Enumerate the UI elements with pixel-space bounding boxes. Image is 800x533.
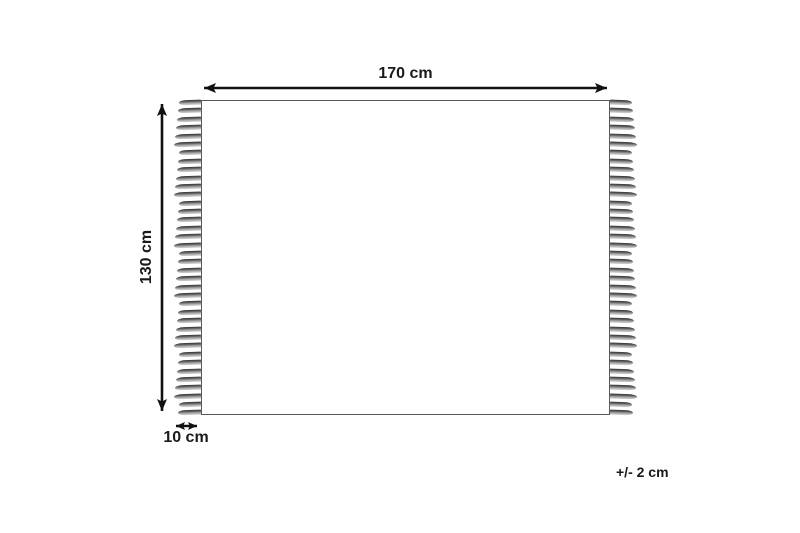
fringe-tassel bbox=[177, 167, 201, 172]
fringe-tassel bbox=[179, 402, 201, 407]
fringe-tassel bbox=[177, 267, 201, 272]
fringe-tassel bbox=[174, 343, 201, 348]
fringe-tassel bbox=[176, 175, 201, 180]
fringe-tassel bbox=[174, 192, 201, 197]
fringe-tassel bbox=[610, 167, 634, 172]
fringe-tassel bbox=[610, 217, 634, 222]
fringe-tassel bbox=[610, 267, 634, 272]
fringe-tassel bbox=[175, 334, 201, 339]
rug-fringe-right bbox=[610, 100, 639, 415]
fringe-tassel bbox=[176, 276, 201, 281]
fringe-tassel bbox=[610, 141, 637, 146]
fringe-tassel bbox=[610, 158, 633, 163]
fringe-tassel bbox=[610, 334, 636, 339]
rug-fringe-left bbox=[172, 100, 201, 415]
fringe-tassel bbox=[610, 192, 637, 197]
fringe-tassel bbox=[179, 200, 201, 205]
fringe-tassel bbox=[178, 360, 201, 365]
fringe-tassel bbox=[176, 225, 201, 230]
rug-dimension-diagram: 170 cm 130 cm 10 cm +/- 2 cm bbox=[0, 0, 800, 533]
fringe-tassel bbox=[179, 100, 201, 105]
fringe-tassel bbox=[610, 100, 632, 105]
fringe-tassel bbox=[610, 360, 633, 365]
fringe-tassel bbox=[178, 158, 201, 163]
fringe-tassel bbox=[610, 133, 636, 138]
fringe-tassel bbox=[178, 410, 201, 415]
fringe-tassel bbox=[174, 293, 201, 298]
fringe-tassel bbox=[179, 251, 201, 256]
fringe-tassel bbox=[610, 225, 635, 230]
rug-body-outline bbox=[201, 100, 610, 415]
fringe-tassel bbox=[610, 351, 632, 356]
fringe-tassel bbox=[175, 133, 201, 138]
width-dimension-label: 170 cm bbox=[201, 66, 610, 82]
fringe-tassel bbox=[610, 326, 635, 331]
fringe-dimension-label: 10 cm bbox=[156, 430, 216, 446]
fringe-tassel bbox=[610, 209, 633, 214]
fringe-tassel bbox=[610, 183, 636, 188]
fringe-tassel bbox=[178, 259, 201, 264]
fringe-tassel bbox=[610, 234, 636, 239]
fringe-tassel bbox=[610, 116, 634, 121]
fringe-tassel bbox=[174, 141, 201, 146]
fringe-tassel bbox=[178, 209, 201, 214]
fringe-tassel bbox=[610, 276, 635, 281]
fringe-tassel bbox=[175, 234, 201, 239]
fringe-tassel bbox=[610, 309, 633, 314]
fringe-tassel bbox=[610, 200, 632, 205]
fringe-tassel bbox=[610, 301, 632, 306]
fringe-tassel bbox=[179, 351, 201, 356]
fringe-tassel bbox=[610, 284, 636, 289]
fringe-tassel bbox=[610, 402, 632, 407]
fringe-tassel bbox=[175, 385, 201, 390]
fringe-tassel bbox=[179, 301, 201, 306]
tolerance-label: +/- 2 cm bbox=[616, 465, 669, 479]
fringe-tassel bbox=[177, 217, 201, 222]
fringe-tassel bbox=[176, 326, 201, 331]
fringe-tassel bbox=[610, 410, 633, 415]
fringe-tassel bbox=[610, 150, 632, 155]
fringe-tassel bbox=[610, 175, 635, 180]
fringe-tassel bbox=[177, 368, 201, 373]
fringe-tassel bbox=[178, 309, 201, 314]
height-dimension-label: 130 cm bbox=[139, 211, 155, 303]
fringe-tassel bbox=[177, 116, 201, 121]
fringe-tassel bbox=[178, 108, 201, 113]
fringe-tassel bbox=[177, 318, 201, 323]
fringe-tassel bbox=[610, 318, 634, 323]
fringe-tassel bbox=[174, 242, 201, 247]
fringe-tassel bbox=[610, 251, 632, 256]
fringe-tassel bbox=[610, 293, 637, 298]
fringe-tassel bbox=[610, 393, 637, 398]
fringe-tassel bbox=[176, 125, 201, 130]
fringe-tassel bbox=[610, 125, 635, 130]
fringe-tassel bbox=[176, 376, 201, 381]
fringe-tassel bbox=[610, 376, 635, 381]
fringe-tassel bbox=[610, 343, 637, 348]
fringe-tassel bbox=[610, 368, 634, 373]
fringe-tassel bbox=[179, 150, 201, 155]
fringe-tassel bbox=[175, 284, 201, 289]
fringe-tassel bbox=[610, 108, 633, 113]
fringe-tassel bbox=[610, 259, 633, 264]
fringe-tassel bbox=[610, 242, 637, 247]
fringe-tassel bbox=[174, 393, 201, 398]
fringe-tassel bbox=[175, 183, 201, 188]
fringe-tassel bbox=[610, 385, 636, 390]
